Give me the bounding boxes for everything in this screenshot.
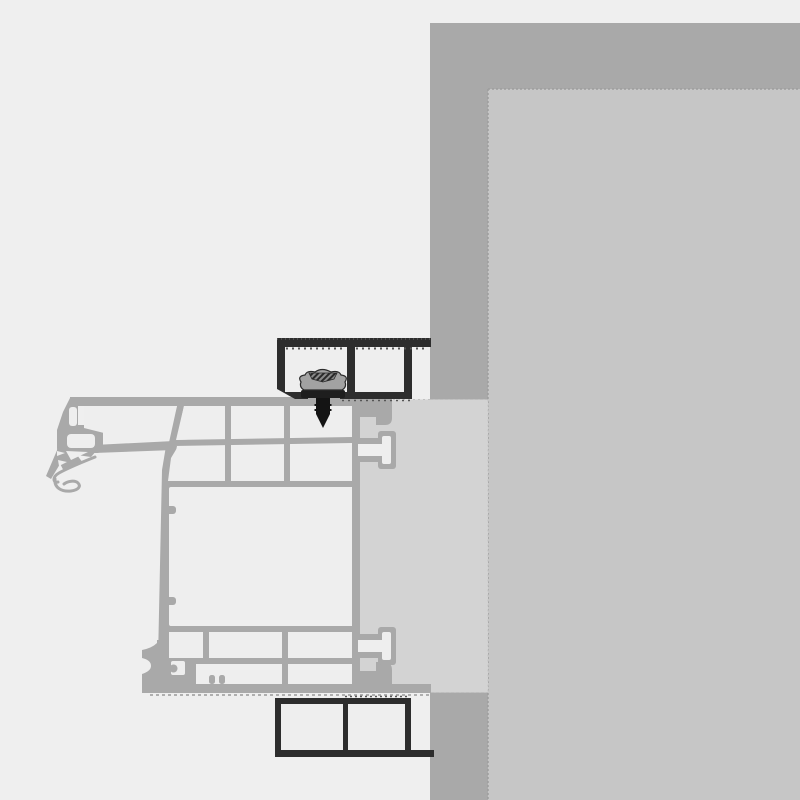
bar-tooth-2 bbox=[219, 675, 225, 684]
web-vertical-2 bbox=[284, 406, 290, 483]
chamber-nub-lower bbox=[166, 597, 176, 605]
wall-reveal bbox=[488, 89, 800, 800]
screw-thread-1 bbox=[315, 404, 332, 406]
bottom-bracket-bottom-bar bbox=[275, 750, 434, 757]
frame-bottom-bar bbox=[142, 684, 431, 693]
screw-washer bbox=[301, 390, 345, 398]
top-bracket-right-wall bbox=[404, 346, 412, 394]
anchor-bracket-bottom bbox=[275, 698, 434, 757]
web-vertical-1 bbox=[225, 406, 231, 483]
web-vertical-3 bbox=[203, 632, 209, 658]
main-chamber bbox=[169, 487, 352, 626]
technical-drawing-canvas bbox=[0, 0, 800, 800]
cross-section-drawing bbox=[0, 0, 800, 800]
top-bracket-divider bbox=[347, 347, 355, 393]
bar-tooth-1 bbox=[209, 675, 215, 684]
bottom-bracket-divider bbox=[343, 698, 348, 752]
web-horizontal-c bbox=[160, 626, 352, 632]
anchor-bracket-top bbox=[277, 338, 431, 401]
top-bracket-left-wall bbox=[277, 338, 285, 388]
chamber-nub-upper bbox=[166, 506, 176, 514]
hook-notch-tab bbox=[170, 665, 178, 673]
gasket-chamber bbox=[67, 434, 95, 448]
top-bracket-bottom-bar bbox=[340, 392, 412, 399]
screw-thread-2 bbox=[315, 409, 332, 411]
web-horizontal-b bbox=[168, 481, 352, 487]
bottom-bracket-right-wall bbox=[405, 698, 411, 752]
bottom-bracket-left-wall bbox=[275, 698, 281, 757]
web-horizontal-d bbox=[180, 658, 352, 664]
